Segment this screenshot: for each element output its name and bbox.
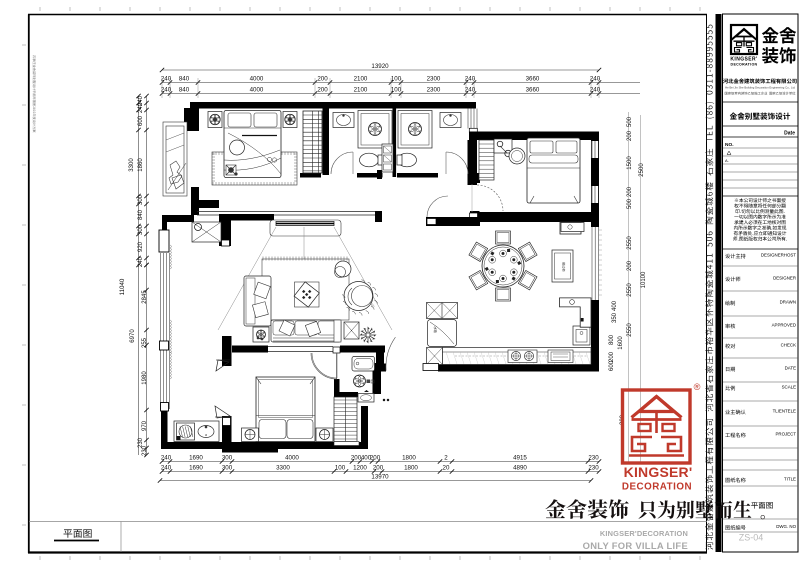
svg-text:4890: 4890 (513, 465, 527, 472)
svg-text:A.: A. (725, 158, 729, 163)
svg-text:DATE: DATE (785, 366, 796, 371)
svg-text:a: a (205, 433, 207, 437)
svg-text:2300: 2300 (427, 76, 441, 83)
svg-text:DWG. NO: DWG. NO (776, 524, 796, 529)
svg-text:3300: 3300 (129, 158, 135, 172)
svg-text:4915: 4915 (513, 455, 527, 462)
svg-text:6970: 6970 (130, 329, 136, 343)
svg-text:240: 240 (138, 102, 144, 113)
svg-text:200: 200 (370, 455, 381, 462)
svg-text:1860: 1860 (138, 158, 144, 172)
svg-text:3660: 3660 (526, 87, 540, 94)
svg-text:600: 600 (609, 360, 615, 371)
svg-text:300: 300 (222, 455, 233, 462)
svg-text:DRAWN: DRAWN (780, 300, 796, 305)
svg-text:1800: 1800 (402, 455, 416, 462)
svg-text:DECORATION: DECORATION (622, 482, 692, 493)
svg-text:240: 240 (465, 87, 476, 94)
svg-text:13970: 13970 (371, 474, 389, 481)
svg-text:100: 100 (335, 465, 346, 472)
svg-text:200: 200 (627, 130, 633, 141)
svg-text:Date: Date (784, 131, 795, 137)
svg-text:2500: 2500 (639, 163, 645, 177)
svg-text:DECORATION: DECORATION (731, 63, 758, 67)
svg-text:500: 500 (627, 198, 633, 209)
svg-text:1600: 1600 (618, 336, 624, 350)
svg-text:200: 200 (627, 186, 633, 197)
svg-text:2550: 2550 (627, 283, 633, 297)
svg-text:DESIGNERHOST: DESIGNERHOST (761, 253, 796, 258)
svg-text:300: 300 (138, 224, 144, 235)
svg-text:600: 600 (138, 115, 144, 126)
svg-text:2550: 2550 (627, 323, 633, 337)
svg-text:1690: 1690 (189, 465, 203, 472)
svg-text:240: 240 (590, 87, 601, 94)
svg-text:230: 230 (588, 465, 599, 472)
svg-text:300: 300 (222, 465, 233, 472)
svg-text:ZS-04: ZS-04 (739, 533, 764, 543)
svg-text:2: 2 (444, 455, 448, 462)
svg-text:350: 350 (612, 312, 618, 323)
svg-text:DESIGNER: DESIGNER (773, 276, 796, 281)
svg-text:240: 240 (161, 87, 172, 94)
svg-text:SCALE: SCALE (782, 385, 796, 390)
svg-text:11040: 11040 (119, 278, 126, 295)
svg-text:100: 100 (391, 87, 402, 94)
svg-text:10100: 10100 (641, 271, 647, 288)
svg-text:255: 255 (142, 337, 148, 348)
svg-text:200: 200 (317, 76, 328, 83)
svg-text:230: 230 (588, 455, 599, 462)
svg-text:1200: 1200 (353, 465, 367, 472)
svg-text:230: 230 (142, 445, 148, 456)
svg-text:2100: 2100 (354, 87, 368, 94)
svg-text:240: 240 (138, 256, 144, 267)
svg-text:®: ® (694, 382, 701, 392)
svg-text:2100: 2100 (354, 76, 368, 83)
svg-text:800: 800 (609, 334, 615, 345)
svg-text:ONLY FOR VILLA LIFE: ONLY FOR VILLA LIFE (583, 540, 688, 551)
svg-text:400: 400 (612, 300, 618, 311)
svg-text:3300: 3300 (276, 465, 290, 472)
svg-text:2550: 2550 (627, 236, 633, 250)
svg-text:CHECK: CHECK (781, 343, 796, 348)
svg-text:500: 500 (627, 116, 633, 127)
svg-text:2300: 2300 (427, 87, 441, 94)
svg-text:20: 20 (443, 465, 450, 472)
svg-text:PROJECT: PROJECT (776, 432, 797, 437)
svg-text:2845: 2845 (142, 290, 148, 304)
svg-text:4000: 4000 (250, 76, 264, 83)
svg-text:200: 200 (373, 465, 384, 472)
svg-text:240: 240 (465, 76, 476, 83)
svg-text:840: 840 (138, 209, 144, 220)
svg-text:13920: 13920 (371, 63, 389, 70)
svg-text:240: 240 (161, 465, 172, 472)
svg-text:He Bei Jin She Building Decora: He Bei Jin She Building Decoration Engin… (725, 86, 795, 90)
svg-text:1500: 1500 (627, 156, 633, 170)
svg-text:100: 100 (391, 76, 402, 83)
svg-text:200: 200 (627, 260, 633, 271)
svg-text:920: 920 (138, 241, 144, 252)
svg-text:KINGSER': KINGSER' (624, 464, 693, 480)
svg-text:200: 200 (609, 351, 615, 362)
svg-text:TLIENTELE: TLIENTELE (773, 409, 796, 414)
svg-text:240: 240 (590, 76, 601, 83)
svg-text:KINGSER'DECORATION: KINGSER'DECORATION (600, 529, 688, 538)
svg-text:APPROVED: APPROVED (772, 323, 796, 328)
svg-text:4000: 4000 (250, 87, 264, 94)
svg-text:840: 840 (179, 76, 190, 83)
svg-text:240: 240 (161, 76, 172, 83)
svg-text:1800: 1800 (404, 465, 418, 472)
svg-text:240: 240 (161, 455, 172, 462)
svg-text:3660: 3660 (526, 76, 540, 83)
svg-text:200: 200 (317, 87, 328, 94)
svg-text:1980: 1980 (142, 371, 148, 385)
svg-text:300: 300 (138, 194, 144, 205)
svg-text:1690: 1690 (189, 455, 203, 462)
svg-text:970: 970 (142, 420, 148, 431)
svg-text:4000: 4000 (285, 455, 299, 462)
svg-text:840: 840 (179, 87, 190, 94)
svg-text:TITLE: TITLE (784, 477, 796, 482)
svg-text:NO.: NO. (725, 142, 734, 148)
